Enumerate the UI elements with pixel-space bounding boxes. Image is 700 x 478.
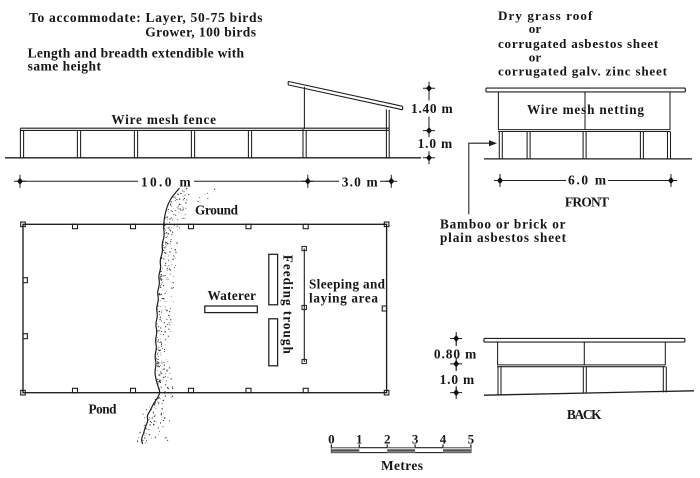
svg-text:1.0 m: 1.0 m (418, 136, 453, 151)
svg-text:or: or (529, 21, 542, 36)
svg-text:3: 3 (412, 432, 419, 447)
svg-text:Sleeping and: Sleeping and (309, 276, 386, 291)
svg-text:Dry grass roof: Dry grass roof (498, 8, 593, 23)
svg-text:plain asbestos sheet: plain asbestos sheet (440, 230, 567, 245)
svg-text:2: 2 (384, 432, 391, 447)
svg-text:FRONT: FRONT (565, 195, 609, 210)
svg-text:Waterer: Waterer (208, 288, 257, 303)
svg-text:Grower, 100 birds: Grower, 100 birds (145, 25, 256, 40)
svg-text:1.40 m: 1.40 m (411, 101, 453, 116)
svg-text:corrugated asbestos sheet: corrugated asbestos sheet (498, 36, 659, 51)
svg-text:3.0 m: 3.0 m (342, 174, 378, 189)
svg-text:BACK: BACK (567, 407, 602, 422)
svg-text:laying area: laying area (309, 291, 378, 306)
svg-text:Wire mesh fence: Wire mesh fence (111, 112, 216, 127)
svg-text:1.0 m: 1.0 m (440, 372, 475, 387)
svg-text:Wire mesh netting: Wire mesh netting (527, 102, 644, 117)
svg-text:5: 5 (468, 432, 475, 447)
svg-text:0: 0 (328, 432, 335, 447)
svg-text:corrugated galv. zinc sheet: corrugated galv. zinc sheet (498, 63, 668, 78)
svg-text:Metres: Metres (381, 458, 423, 473)
svg-text:Ground: Ground (195, 202, 239, 217)
svg-text:0.80 m: 0.80 m (434, 347, 476, 362)
svg-text:1: 1 (356, 432, 363, 447)
svg-text:Feeding trough: Feeding trough (280, 255, 295, 355)
svg-text:same height: same height (28, 58, 102, 73)
svg-text:4: 4 (440, 432, 447, 447)
svg-text:6.0 m: 6.0 m (568, 172, 606, 187)
svg-text:To accommodate: Layer, 50-75 b: To accommodate: Layer, 50-75 birds (29, 10, 263, 25)
svg-text:or: or (529, 49, 542, 64)
svg-text:Pond: Pond (89, 401, 118, 416)
